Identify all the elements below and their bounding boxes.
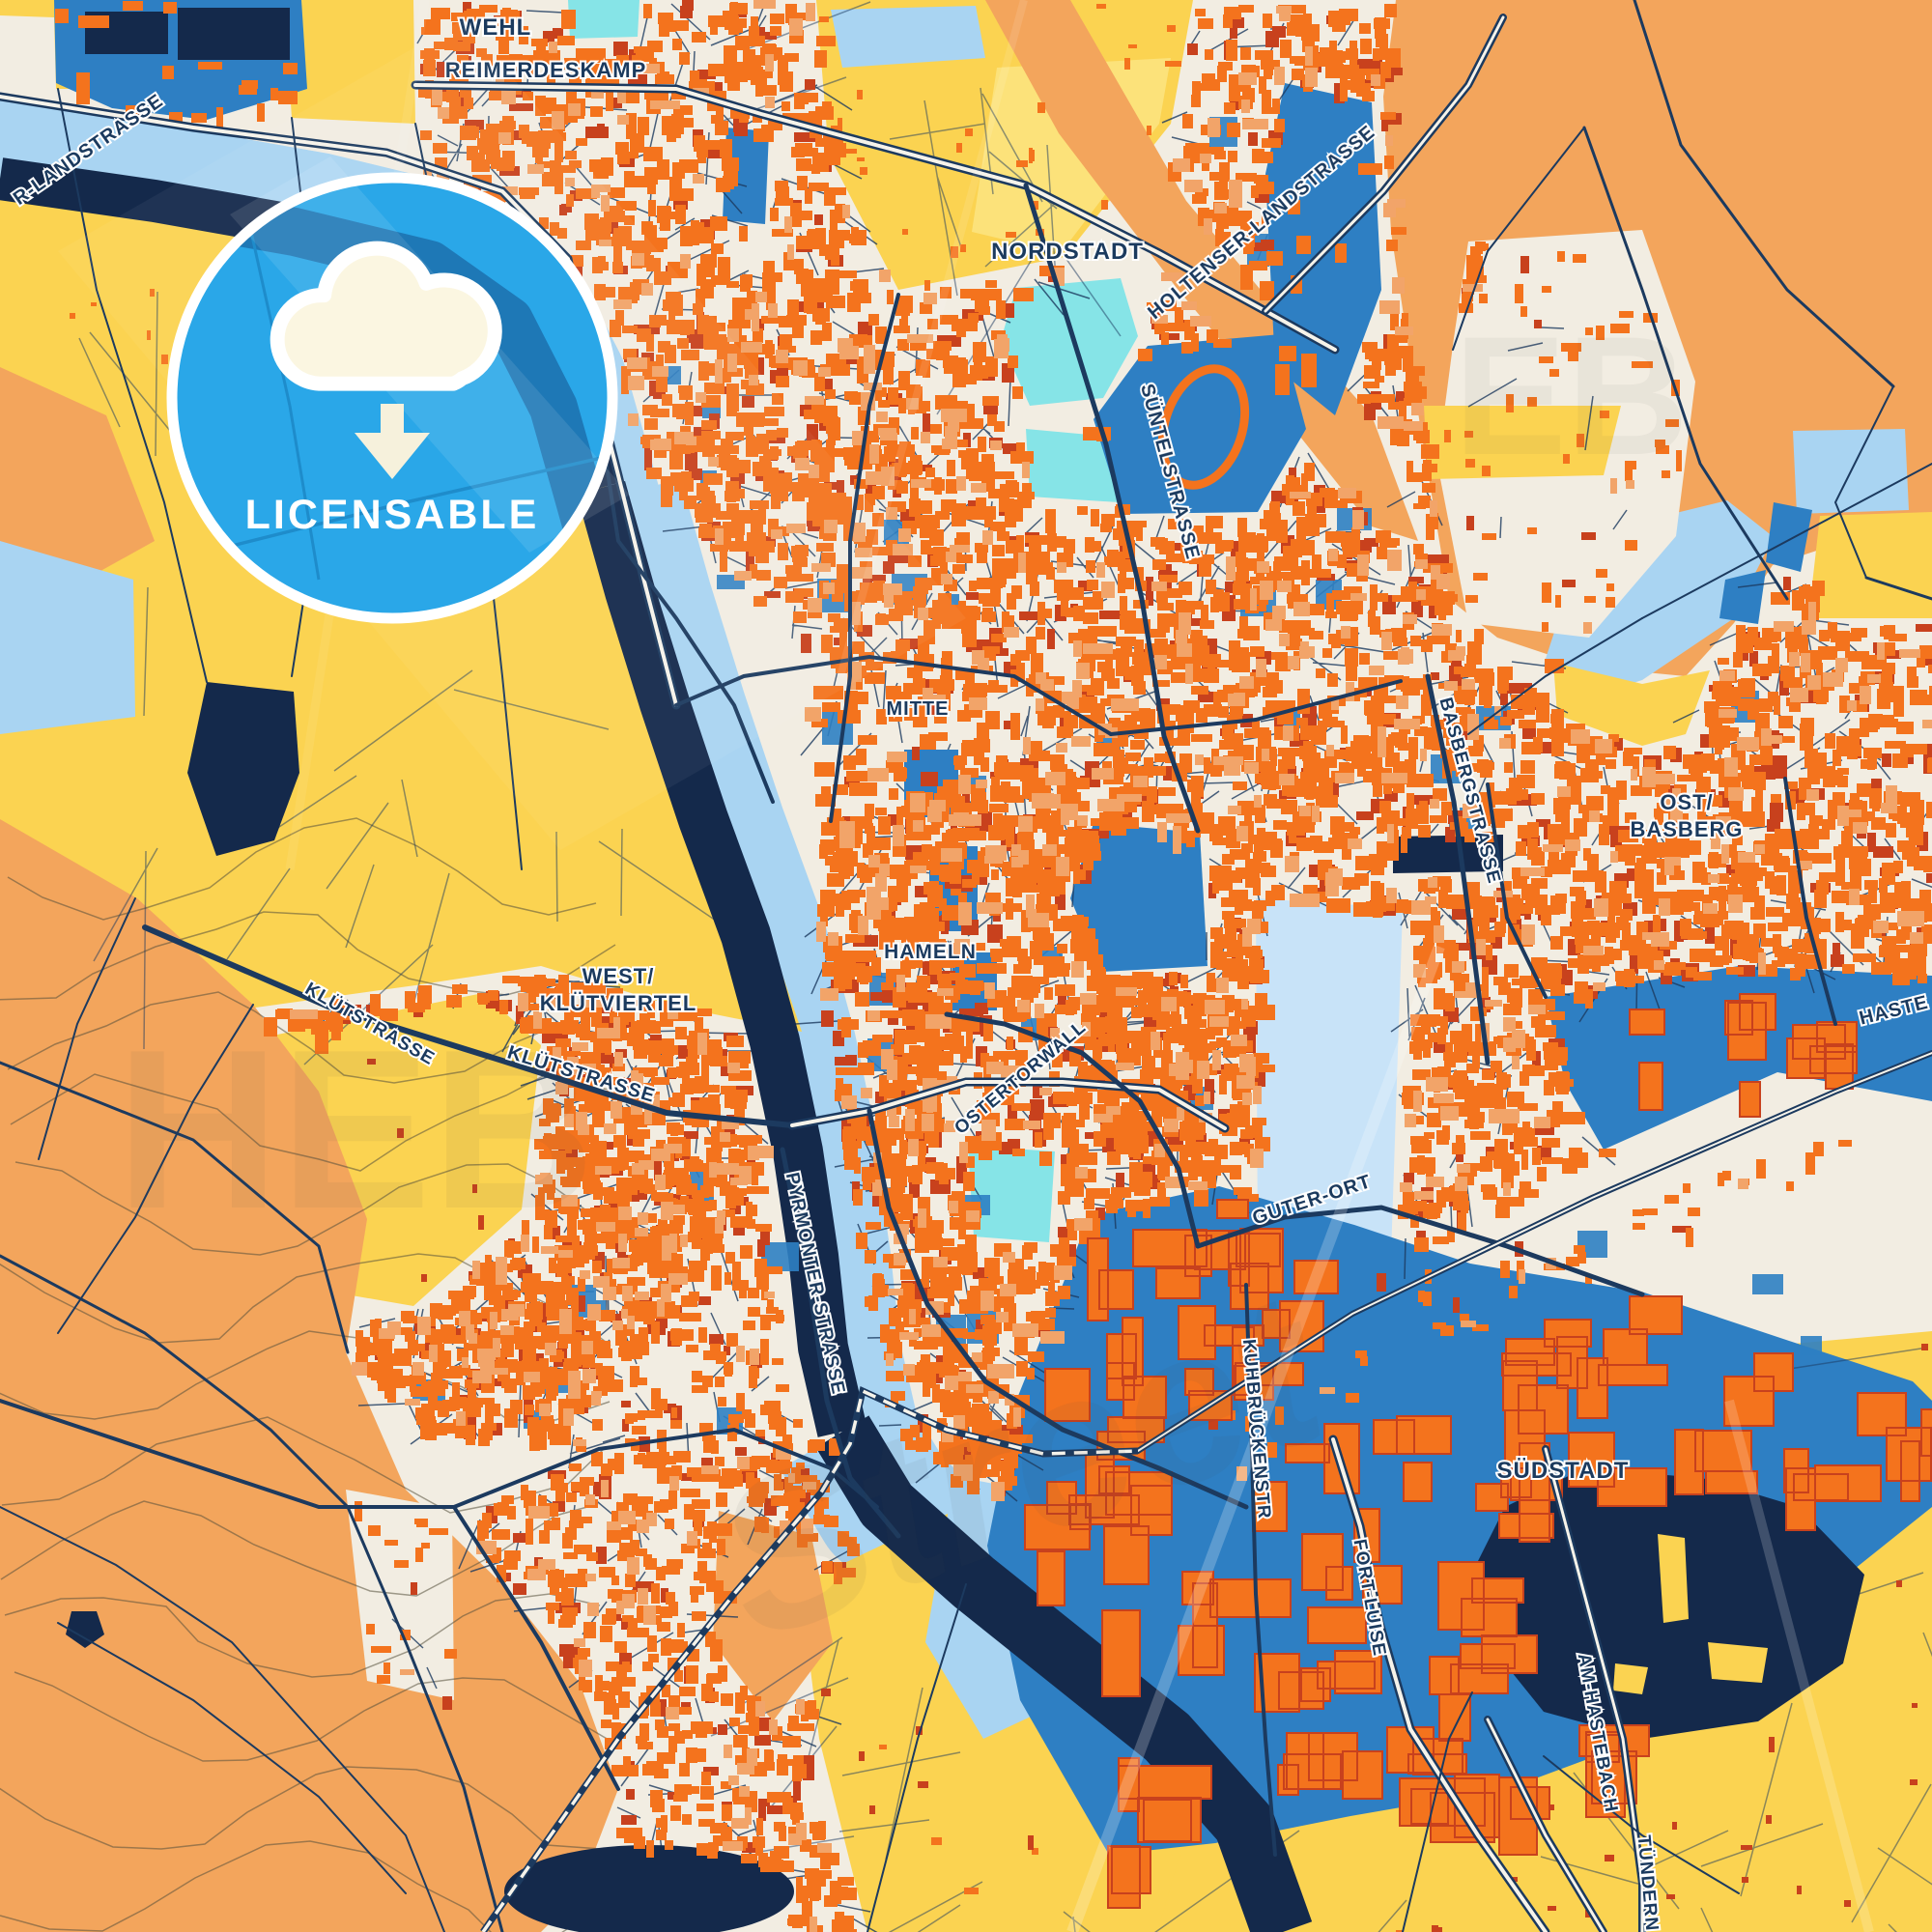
svg-text:LICENSABLE: LICENSABLE	[245, 492, 540, 538]
svg-text:HEB: HEB	[116, 1002, 595, 1256]
svg-text:BASBERG: BASBERG	[1630, 817, 1743, 841]
svg-text:EB: EB	[1454, 302, 1689, 491]
svg-text:KLÜTVIERTEL: KLÜTVIERTEL	[540, 991, 697, 1015]
svg-text:OST/: OST/	[1660, 790, 1713, 814]
svg-text:NORDSTADT: NORDSTADT	[991, 239, 1144, 265]
svg-text:SÜDSTADT: SÜDSTADT	[1497, 1458, 1630, 1484]
svg-text:HAMELN: HAMELN	[884, 941, 977, 963]
svg-text:MITTE: MITTE	[887, 698, 950, 720]
svg-text:WEST/: WEST/	[582, 964, 655, 988]
